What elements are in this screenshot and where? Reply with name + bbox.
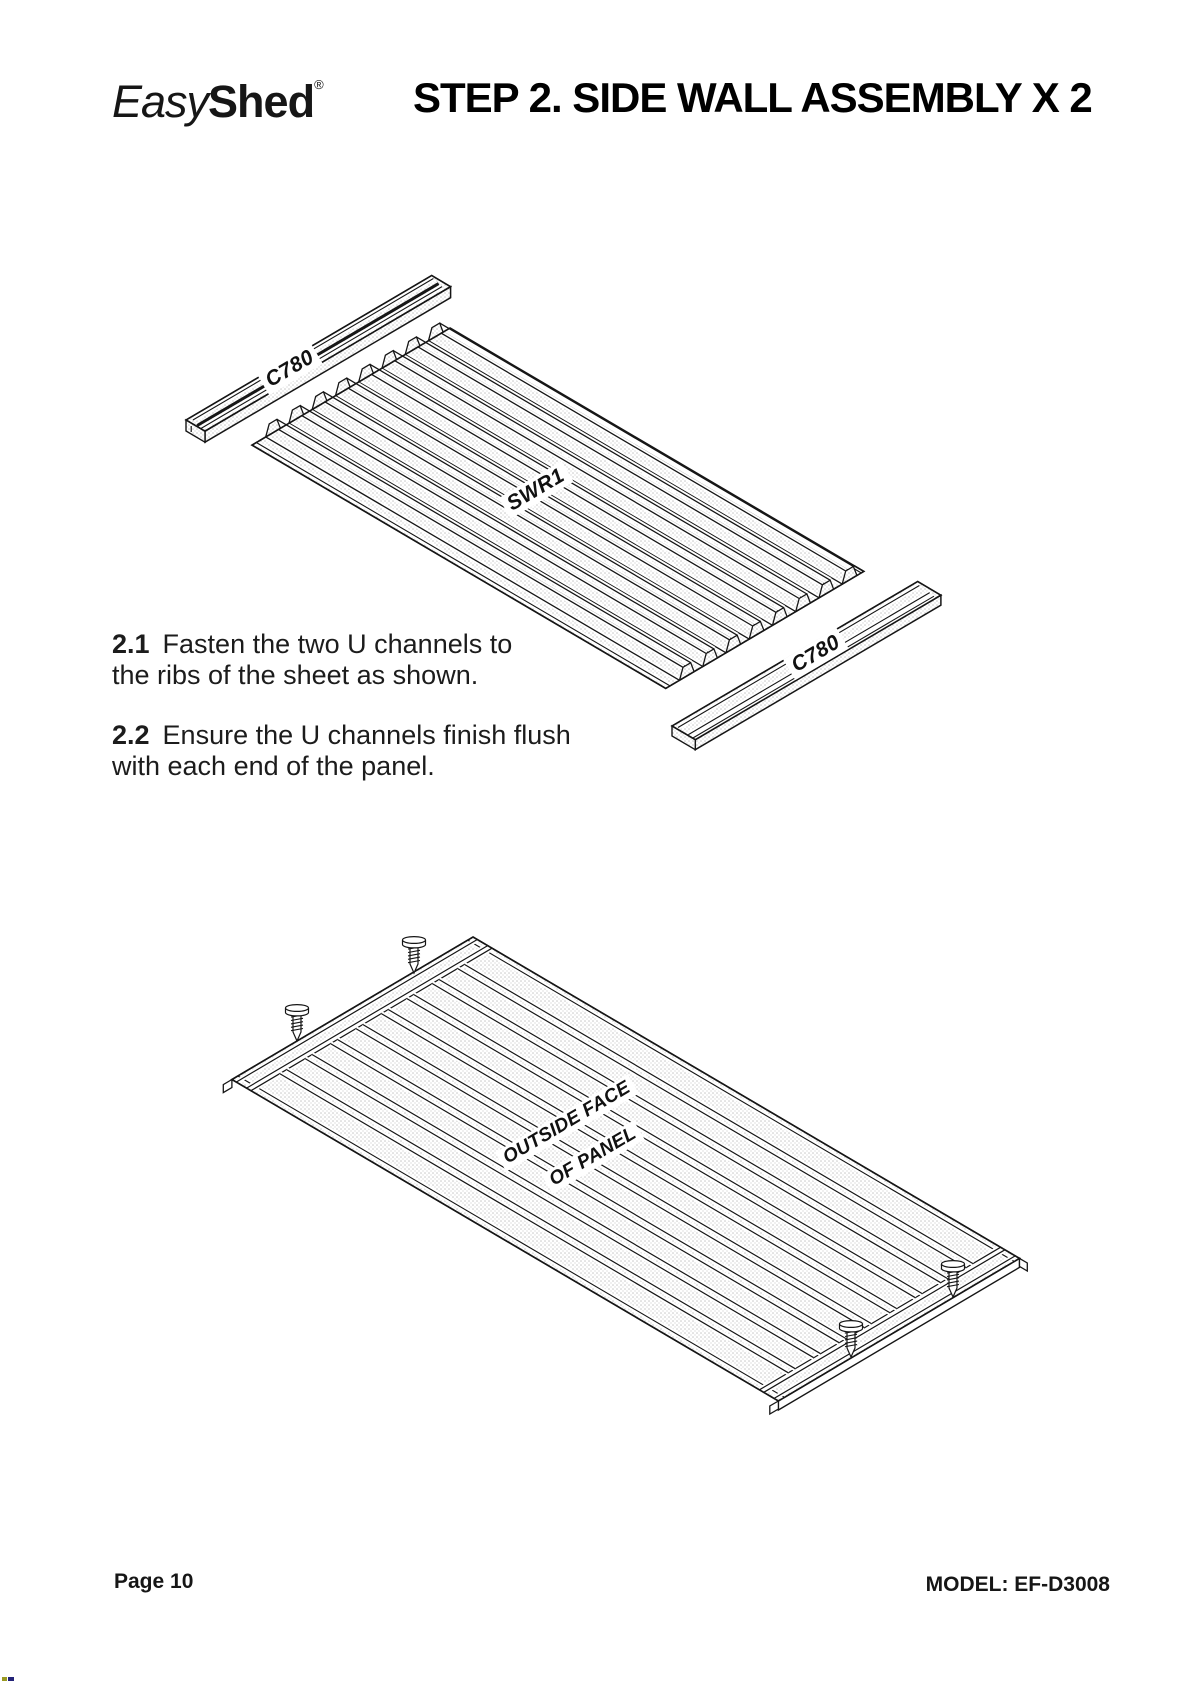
instruction-text: 2.1Fasten the two U channels to the ribs… bbox=[112, 629, 571, 782]
step-number: 2.1 bbox=[112, 629, 163, 659]
step-number: 2.2 bbox=[112, 720, 163, 750]
diagram-canvas bbox=[0, 0, 1191, 1685]
assembly-diagrams bbox=[0, 0, 1191, 1685]
instruction-2-2-line1: 2.2Ensure the U channels finish flush bbox=[112, 720, 571, 751]
instruction-2-1-line1: 2.1Fasten the two U channels to bbox=[112, 629, 571, 660]
scan-artifact bbox=[2, 1677, 14, 1681]
model-number: MODEL: EF-D3008 bbox=[926, 1573, 1110, 1597]
page-number: Page 10 bbox=[114, 1570, 193, 1594]
manual-page: EasyShed® STEP 2. SIDE WALL ASSEMBLY X 2… bbox=[0, 0, 1191, 1685]
instruction-2-1-line2: the ribs of the sheet as shown. bbox=[112, 660, 571, 691]
diagram-assembled-wall bbox=[223, 937, 1027, 1414]
instruction-2-2-line2: with each end of the panel. bbox=[112, 751, 571, 782]
